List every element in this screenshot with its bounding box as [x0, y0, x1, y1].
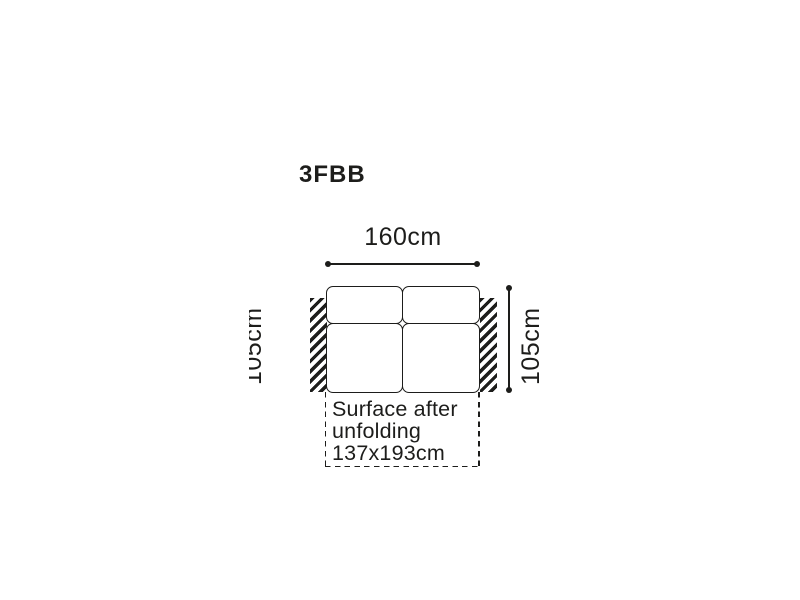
unfolded-surface-note: Surface after unfolding 137x193cm [332, 399, 482, 464]
seat-left-cushion [326, 323, 403, 394]
depth-dimension-label-right: 105cm [517, 298, 545, 394]
backrest-left-cushion [326, 286, 403, 324]
unfolded-surface-note-line2: unfolding [332, 421, 482, 443]
right-armrest-hatch [480, 298, 497, 392]
unfolded-surface-outline-bottom [325, 466, 481, 468]
backrest-right-cushion [402, 286, 481, 324]
seat-right-cushion [402, 323, 481, 394]
sofa-dimension-diagram: 3FBB 160cm 105cm 105cm Surface after unf… [0, 0, 800, 600]
unfolded-surface-outline-left [325, 392, 327, 467]
width-dimension-label: 160cm [327, 223, 479, 252]
width-dimension-line [327, 263, 478, 265]
depth-dimension-line [508, 287, 510, 391]
unfolded-surface-note-line3: 137x193cm [332, 443, 482, 465]
left-armrest-hatch [310, 298, 327, 392]
model-code-title: 3FBB [299, 161, 366, 189]
unfolded-surface-note-line1: Surface after [332, 399, 482, 421]
depth-dimension-label-left-clip: 105cm [249, 298, 271, 394]
depth-dimension-label-left: 105cm [249, 298, 267, 394]
